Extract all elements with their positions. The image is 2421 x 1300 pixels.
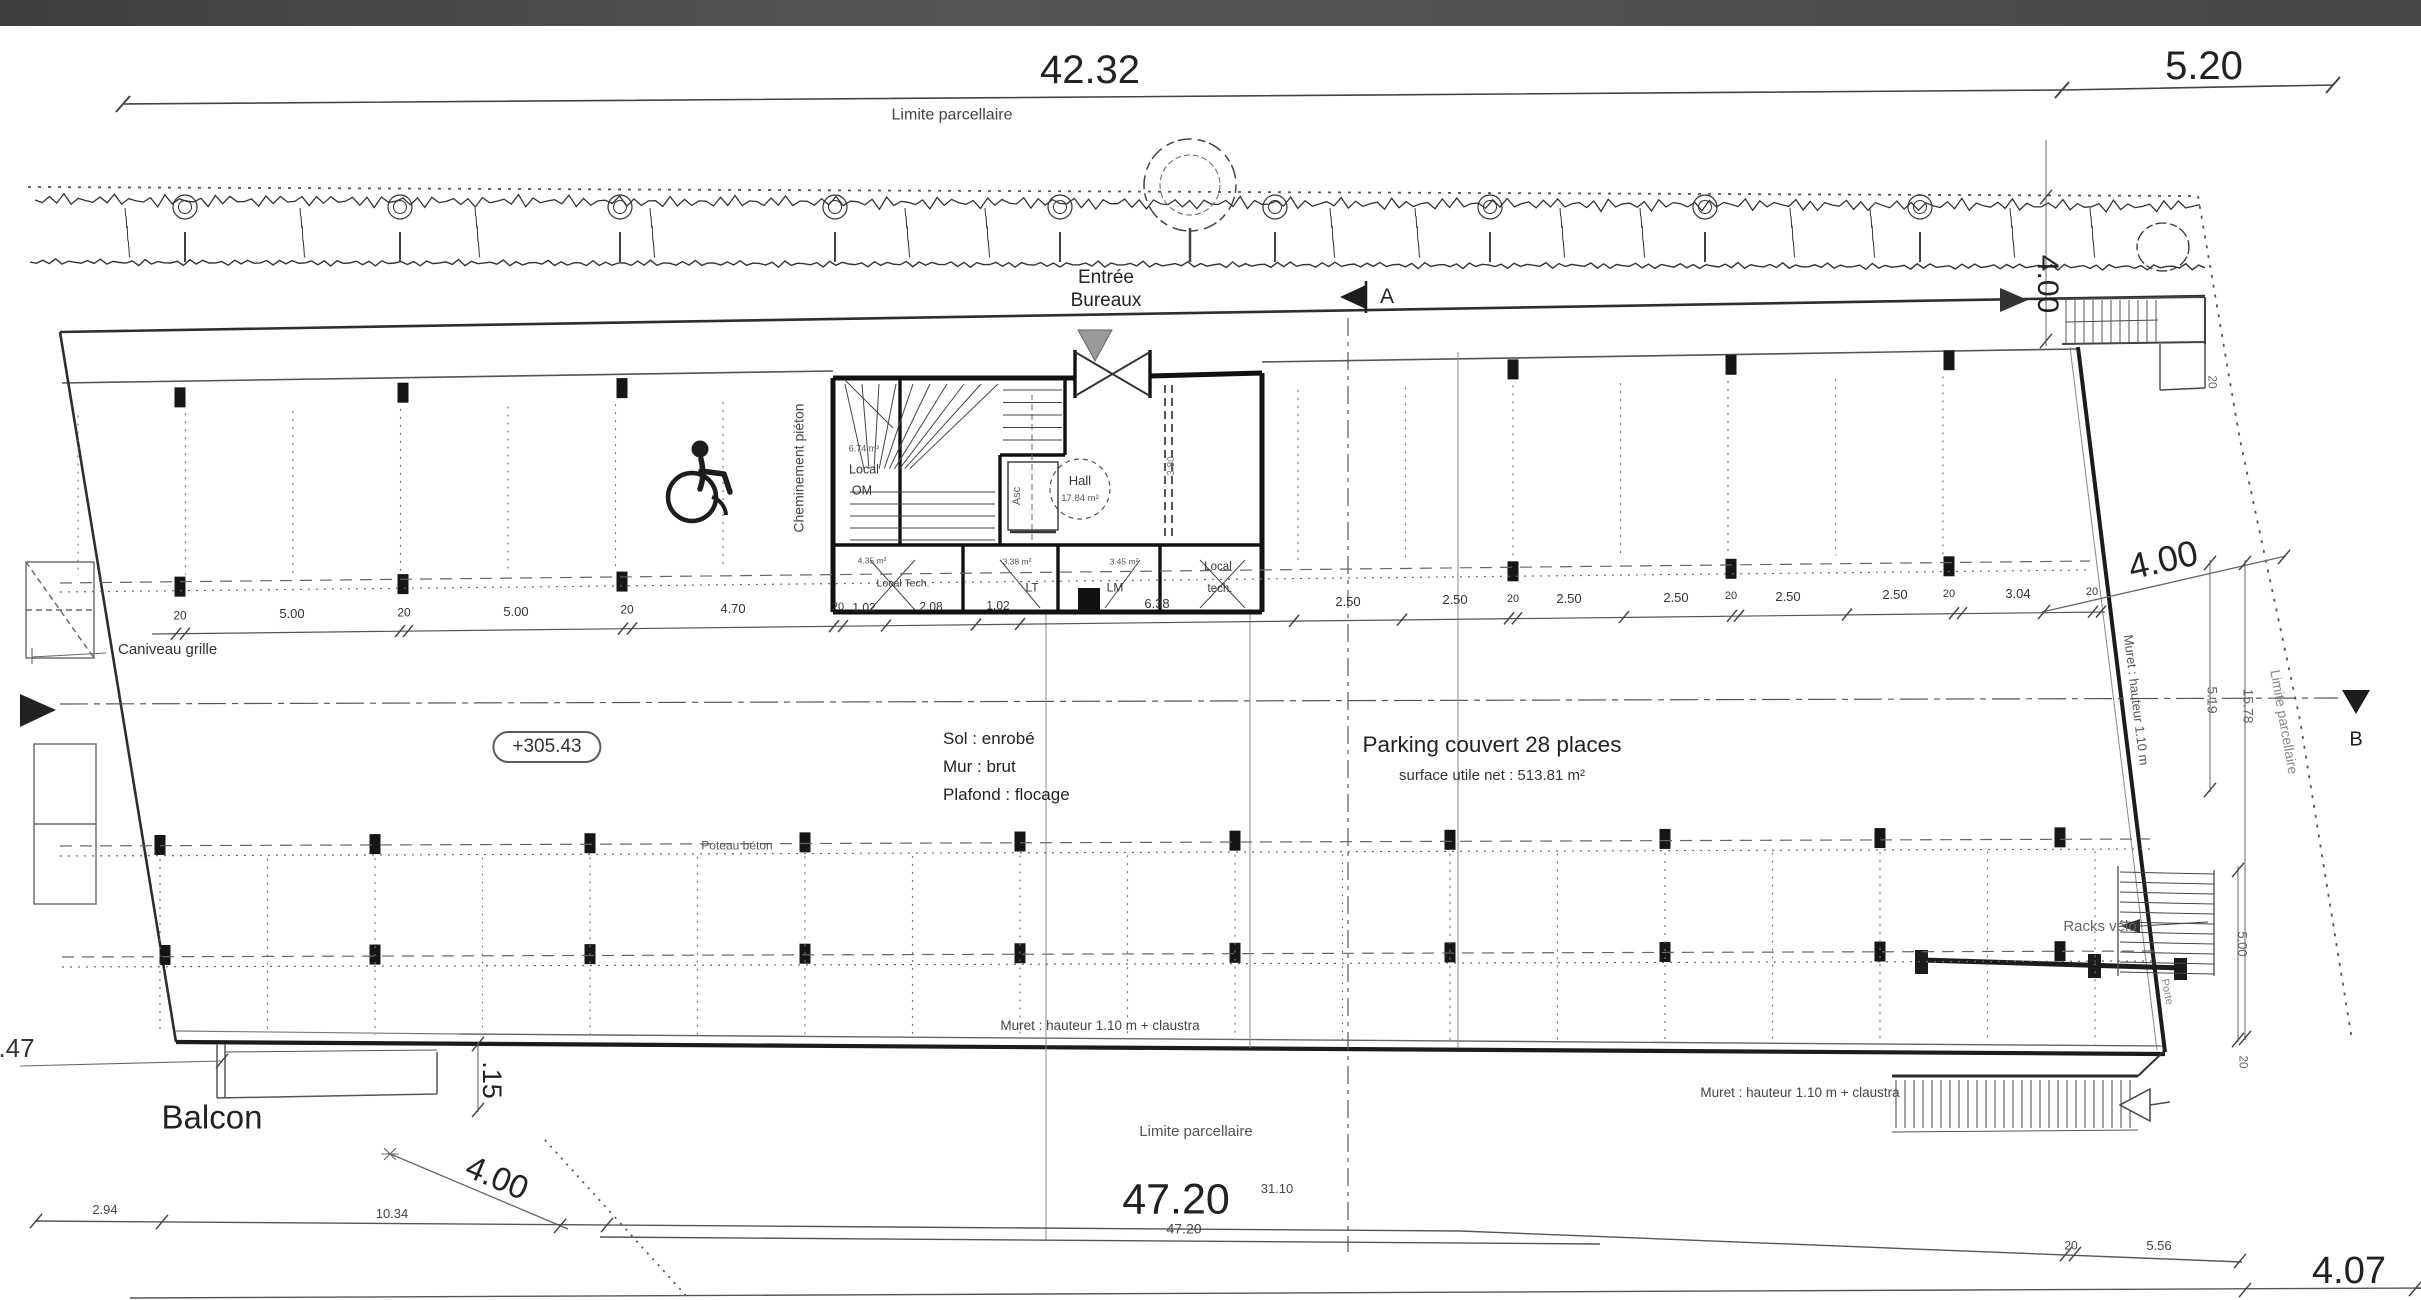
building-outline <box>60 296 2205 1054</box>
dim-mid-12: 2.50 <box>1442 593 1467 607</box>
dim-bl-547: 5.47 <box>0 1034 35 1064</box>
level-badge: +305.43 <box>492 731 601 763</box>
parking-title: Parking couvert 28 places <box>1363 733 1622 757</box>
finish-sol: Sol : enrobé <box>943 729 1035 749</box>
room-t4-line1: Local <box>1204 561 1232 573</box>
balcony <box>217 1044 437 1098</box>
dim-right-500: 5.00 <box>2235 931 2249 956</box>
dim-right-20-bottom: 20 <box>2237 1055 2250 1068</box>
dim-bl-015: .15 <box>478 1061 506 1099</box>
dim-bottom-4720-small: 47.20 <box>1166 1222 1201 1237</box>
dim-bottom-556: 5.56 <box>2146 1239 2171 1253</box>
caniveau-grille-label: Caniveau grille <box>118 641 217 658</box>
hall-area: 17.84 m² <box>1061 494 1099 504</box>
dim-mid-17: 2.50 <box>1775 590 1800 604</box>
room-t1-area: 4.35 m² <box>858 557 887 566</box>
dim-mid-13: 20 <box>1507 594 1519 606</box>
grid-lines <box>1046 352 1458 1240</box>
limite-parcellaire-top: Limite parcellaire <box>892 108 1013 125</box>
balcon-label: Balcon <box>162 1101 263 1136</box>
dim-mid-3: 5.00 <box>503 605 528 619</box>
dim-mid-8: 2.08 <box>919 601 942 614</box>
racks-velo-label: Racks vélo <box>2063 919 2136 935</box>
dim-bottom-407: 4.07 <box>2312 1252 2386 1292</box>
entry-flow-arrow <box>2000 288 2028 312</box>
room-t2-area: 3.38 m² <box>1003 558 1032 567</box>
dim-mid-6: 20 <box>832 602 844 614</box>
dim-top-main: 42.32 <box>1040 49 1140 91</box>
bottom-dimension-lines <box>36 1221 2421 1298</box>
room-t2-name: LT <box>1025 582 1038 595</box>
dim-bottom-4720-big: 47.20 <box>1122 1177 1230 1222</box>
left-annexes <box>26 562 96 904</box>
dim-bottom-294: 2.94 <box>92 1203 117 1217</box>
local-om-line2: OM <box>852 484 872 497</box>
room-t1-name: Local Tech. <box>877 578 930 589</box>
limite-parcellaire-bottom: Limite parcellaire <box>1139 1124 1252 1140</box>
entree-bureaux-line1: Entrée <box>1078 268 1134 288</box>
parking-subtitle: surface utile net : 513.81 m² <box>1399 768 1585 784</box>
section-marker-a-label: A <box>1380 286 1394 308</box>
dim-mid-20: 3.04 <box>2005 587 2030 601</box>
dim-top-right: 5.20 <box>2165 45 2243 87</box>
dim-mid-1: 5.00 <box>279 607 304 621</box>
dim-mid-2: 20 <box>397 607 410 620</box>
entree-bureaux-line2: Bureaux <box>1071 291 1142 311</box>
dim-mid-7: 1.02 <box>852 602 875 615</box>
dim-mid-10: 6.38 <box>1144 597 1169 611</box>
parking-columns <box>155 350 2066 965</box>
dim-mid-5: 4.70 <box>720 602 745 616</box>
left-arrow <box>20 694 56 727</box>
dim-mid-18: 2.50 <box>1882 588 1907 602</box>
dim-right-20-top: 20 <box>2206 375 2219 388</box>
dim-top-right-vertical: 4.00 <box>2031 255 2063 313</box>
dim-bottom-20: 20 <box>2064 1240 2077 1253</box>
finish-plafond: Plafond : flocage <box>943 785 1070 805</box>
dim-right-519: 5.19 <box>2205 686 2220 713</box>
local-om-line1: Local <box>849 463 879 476</box>
dim-bottom-1034: 10.34 <box>376 1207 409 1221</box>
hall-name: Hall <box>1069 474 1091 488</box>
mid-dimension-line <box>152 612 2105 634</box>
wheelchair-icon <box>668 441 730 522</box>
poteau-beton-label: Poteau béton <box>701 840 772 853</box>
room-t3-name: LM <box>1107 582 1124 595</box>
cheminement-pieton-label: Cheminement piéton <box>792 403 807 532</box>
muret-label-1: Muret : hauteur 1.10 m + claustra <box>1000 1019 1199 1033</box>
muret-label-2: Muret : hauteur 1.10 m + claustra <box>1700 1086 1899 1100</box>
local-om-area: 6.74 m² <box>849 444 880 453</box>
room-t3-area: 3.45 m² <box>1110 558 1139 567</box>
dim-mid-21: 20 <box>2086 587 2098 599</box>
dim-mid-19: 20 <box>1943 589 1955 601</box>
hedge <box>30 194 2205 270</box>
floor-plan-parking-level: 42.32 5.20 Limite parcellaire Entrée Bur… <box>0 0 2421 1300</box>
dim-mid-0: 20 <box>173 610 186 623</box>
stair-core <box>833 330 1262 612</box>
dim-mid-14: 2.50 <box>1556 592 1581 606</box>
top-dimension-line <box>116 77 2340 112</box>
ascenseur-label: Asc <box>1012 487 1024 505</box>
dim-mid-15: 2.50 <box>1663 591 1688 605</box>
section-line-a <box>1340 281 1366 1252</box>
dim-mid-16: 20 <box>1725 591 1737 603</box>
dim-mid-9: 1.02 <box>986 600 1009 613</box>
section-marker-b-label: B <box>2349 730 2362 751</box>
section-line-b <box>60 690 2370 714</box>
dim-right-1578: 15.78 <box>2241 688 2256 723</box>
dim-mid-11: 2.50 <box>1335 595 1360 609</box>
room-t4-line2: tech. <box>1208 583 1233 595</box>
dim-bottom-3110: 31.10 <box>1261 1182 1294 1196</box>
dim-hall-partition: 3.80 <box>1167 456 1178 475</box>
small-dimension-lines <box>20 648 568 1229</box>
dim-mid-4: 20 <box>620 604 633 617</box>
parking-row-lines <box>60 561 2155 967</box>
finish-mur: Mur : brut <box>943 757 1016 777</box>
plan-linework <box>0 0 2421 1300</box>
